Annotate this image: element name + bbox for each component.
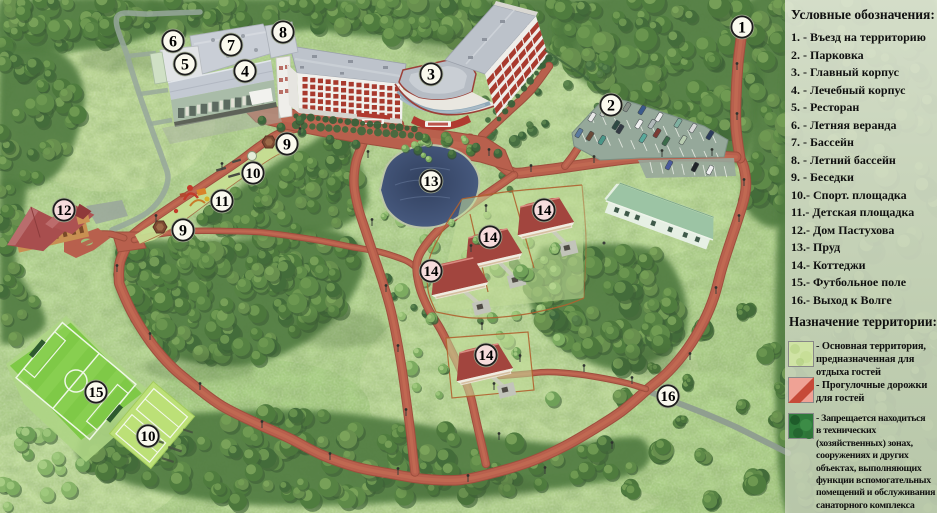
svg-text:6: 6	[169, 34, 177, 51]
svg-text:11: 11	[215, 194, 229, 210]
svg-text:10: 10	[141, 429, 156, 445]
svg-text:7: 7	[227, 38, 235, 55]
svg-text:3: 3	[427, 67, 435, 84]
svg-text:14: 14	[424, 264, 440, 280]
svg-text:10: 10	[246, 166, 261, 182]
svg-text:14: 14	[483, 230, 499, 246]
svg-text:5: 5	[181, 57, 189, 74]
svg-text:4: 4	[241, 64, 249, 81]
svg-text:2: 2	[607, 98, 615, 115]
svg-text:14: 14	[479, 348, 495, 364]
svg-text:13: 13	[424, 174, 439, 190]
svg-text:1: 1	[738, 20, 746, 37]
svg-text:14: 14	[537, 203, 553, 219]
svg-text:15: 15	[89, 385, 104, 401]
svg-text:9: 9	[179, 223, 187, 240]
svg-text:8: 8	[279, 25, 287, 42]
svg-text:12: 12	[57, 203, 72, 219]
svg-text:16: 16	[661, 389, 677, 405]
svg-text:9: 9	[283, 137, 291, 154]
